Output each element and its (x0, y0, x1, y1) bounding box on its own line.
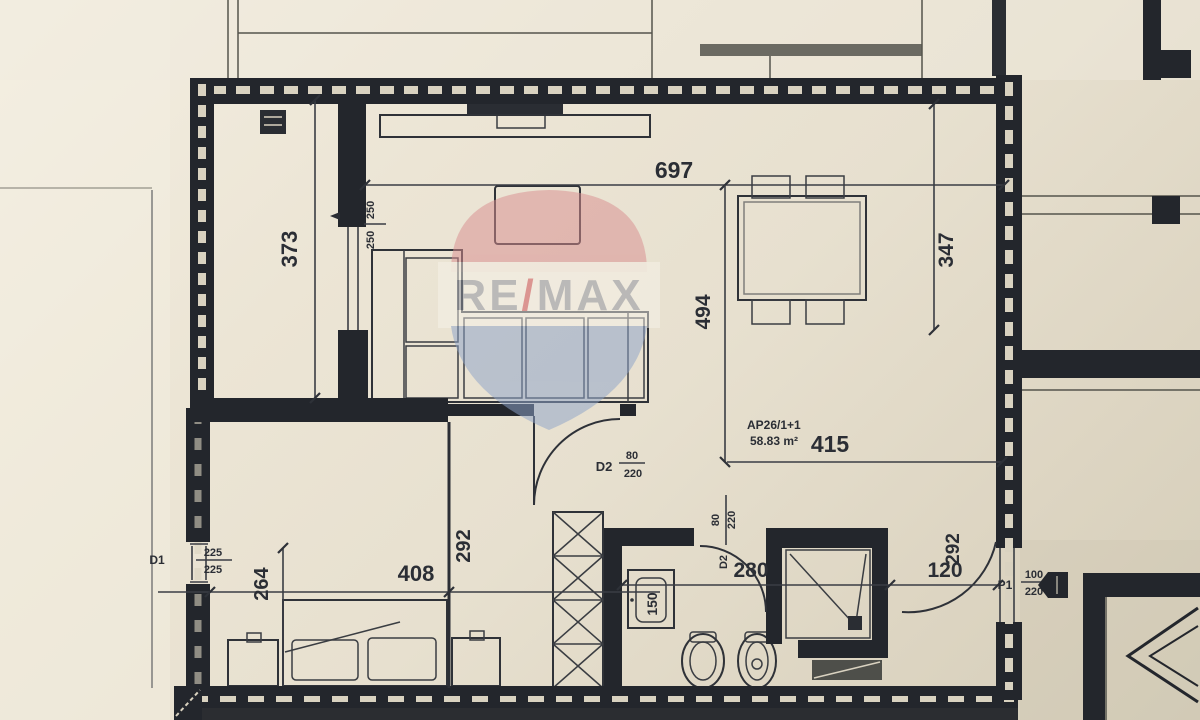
door2-bath-label: D2 (718, 555, 730, 569)
nightstand (228, 640, 278, 686)
dim-bedroom-width: 408 (398, 561, 435, 586)
tv-shelf (497, 115, 545, 128)
wall-shower-right (872, 548, 888, 644)
pillow (368, 638, 436, 680)
nightstand (452, 638, 500, 686)
svg-text:80: 80 (626, 450, 638, 462)
floorplan-drawing: 697 373 347 494 415 292 408 264 280 120 … (0, 0, 1200, 720)
dim-living-width: 415 (811, 431, 850, 457)
toilet (682, 632, 724, 688)
wall-living-left-upper (338, 95, 366, 227)
dim-passage-height: 292 (943, 533, 964, 565)
dim-living-height: 494 (692, 294, 715, 329)
wall-entry-stub (620, 404, 636, 416)
svg-text:80: 80 (710, 514, 722, 526)
dim-bath-width: 280 (733, 559, 768, 582)
sideboard (380, 115, 650, 137)
dim-left-strip: 373 (277, 231, 302, 268)
svg-text:220: 220 (624, 468, 642, 480)
bed (283, 600, 447, 686)
unit-code: AP26/1+1 (747, 418, 801, 432)
pillow (292, 640, 358, 680)
wall-shower-bottom (798, 640, 888, 658)
dim-bedroom-depth: 264 (251, 566, 273, 600)
dining-set (738, 176, 866, 324)
window-arrow-icon (330, 212, 340, 220)
svg-text:250: 250 (365, 231, 377, 249)
shaft (260, 110, 286, 134)
unit-label: AP26/1+1 58.83 m² (747, 418, 801, 448)
wall-bath-top (622, 528, 694, 546)
dim-sink-width: 150 (644, 592, 660, 616)
balloon-top (451, 190, 647, 272)
wall-bottom-outer (186, 708, 1018, 720)
remax-logo-text: RE/MAX (454, 271, 643, 320)
unit-area: 58.83 m² (750, 434, 798, 448)
bedroom-furniture (228, 600, 500, 686)
wardrobe (553, 512, 603, 688)
floorplan-photo: 697 373 347 494 415 292 408 264 280 120 … (0, 0, 1200, 720)
wall-bath-left (604, 528, 622, 690)
svg-text:225: 225 (204, 564, 222, 576)
balcony-door-label: P1 (998, 578, 1013, 592)
remax-watermark: RE/MAX (438, 190, 660, 430)
svg-text:225: 225 (204, 547, 222, 559)
wall-shower-top (766, 528, 888, 548)
dim-top-width: 697 (655, 157, 693, 183)
dim-right-top: 347 (935, 232, 958, 267)
bath-mat (812, 660, 882, 680)
svg-text:100: 100 (1025, 569, 1043, 581)
door2-label: D2 (596, 459, 613, 474)
svg-text:250: 250 (365, 201, 377, 219)
door1-label: D1 (149, 553, 165, 567)
dim-hall-height: 292 (453, 529, 475, 562)
tv-unit (467, 104, 563, 115)
svg-text:220: 220 (726, 511, 738, 529)
shower (786, 550, 870, 638)
wall-bedroom-top (192, 398, 448, 422)
